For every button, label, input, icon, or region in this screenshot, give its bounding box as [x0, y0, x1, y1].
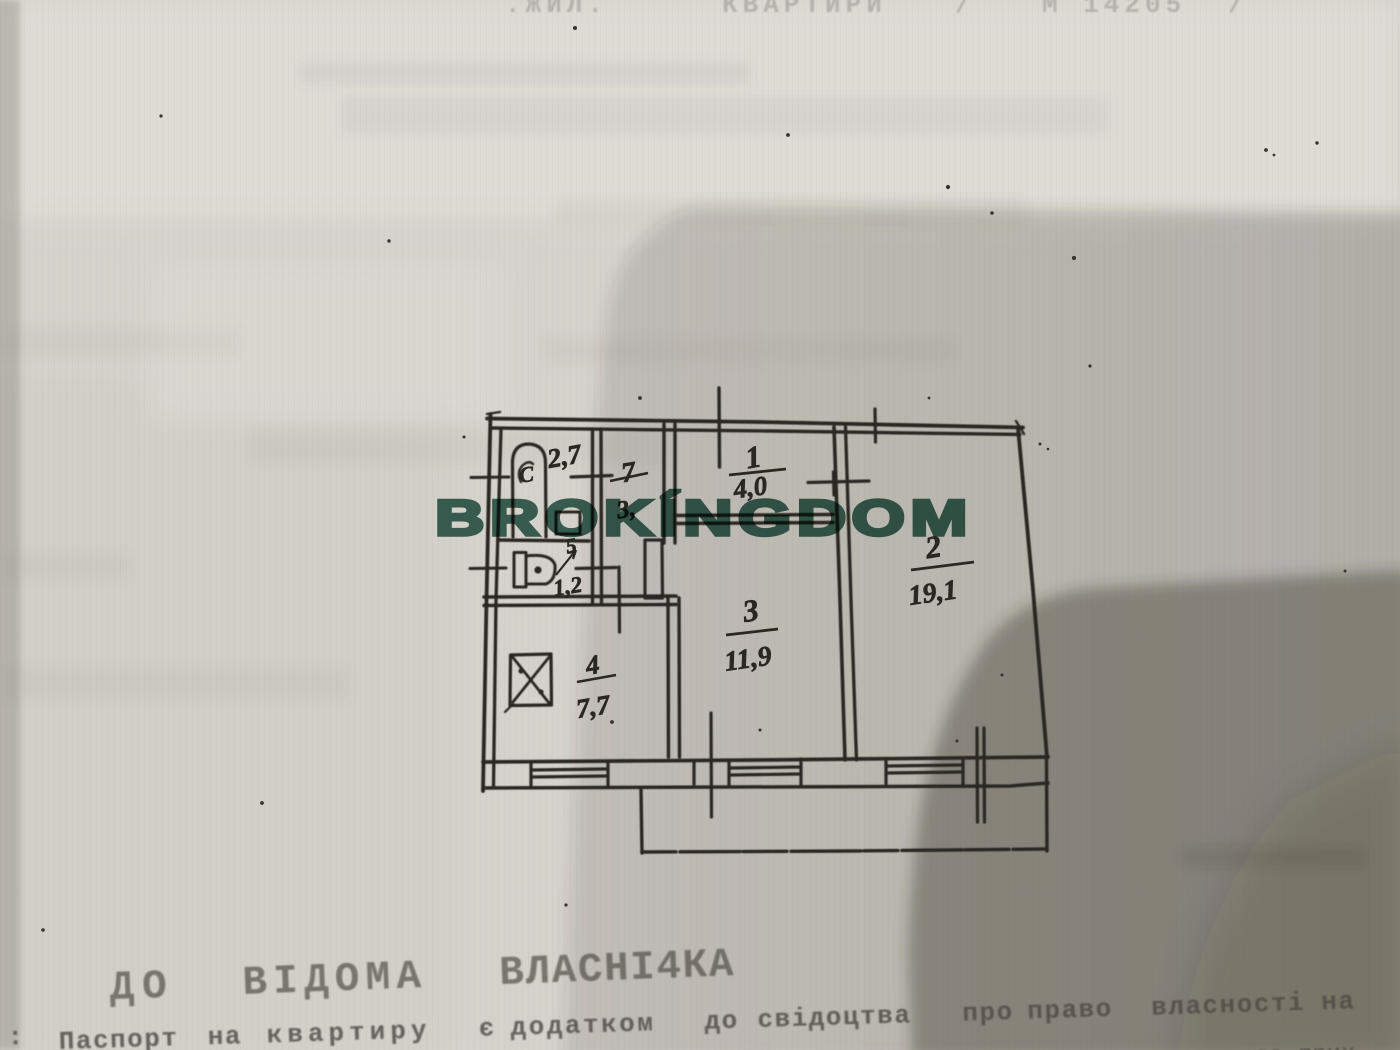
svg-text:ДО: ДО	[109, 964, 176, 1012]
svg-text:право: право	[1027, 994, 1113, 1027]
svg-text:на: на	[207, 1021, 242, 1050]
svg-text:Паспорт: Паспорт	[58, 1023, 179, 1050]
svg-text:КВАРТИРИ: КВАРТИРИ	[722, 0, 887, 20]
svg-text:/: /	[955, 0, 976, 20]
svg-text:є: є	[478, 1013, 496, 1044]
svg-text:BROKÍNGDOM: BROKÍNGDOM	[435, 490, 973, 546]
svg-text:ВІДОМА: ВІДОМА	[242, 954, 428, 1007]
svg-text:М 14205: М 14205	[1042, 0, 1186, 20]
svg-text:на: на	[1321, 986, 1356, 1017]
svg-text:11,9: 11,9	[722, 641, 773, 678]
svg-text:свідоцтва: свідоцтва	[757, 1000, 912, 1035]
svg-text::: :	[7, 1022, 25, 1050]
svg-text:про: про	[962, 997, 1014, 1029]
svg-text:квартиру: квартиру	[266, 1015, 432, 1050]
svg-text:2,7: 2,7	[544, 438, 585, 474]
svg-text:1,2: 1,2	[552, 572, 584, 601]
svg-text:/: /	[1228, 0, 1249, 20]
svg-text:до: до	[704, 1006, 739, 1037]
svg-text:7,7: 7,7	[574, 689, 614, 724]
svg-text:за прих: за прих	[1254, 1041, 1356, 1050]
svg-text:ВЛАСНІ4КА: ВЛАСНІ4КА	[498, 942, 735, 997]
svg-text:додатком: додатком	[510, 1008, 656, 1043]
svg-text:власності: власності	[1151, 988, 1306, 1023]
svg-text:.ЖИЛ.: .ЖИЛ.	[505, 0, 608, 20]
